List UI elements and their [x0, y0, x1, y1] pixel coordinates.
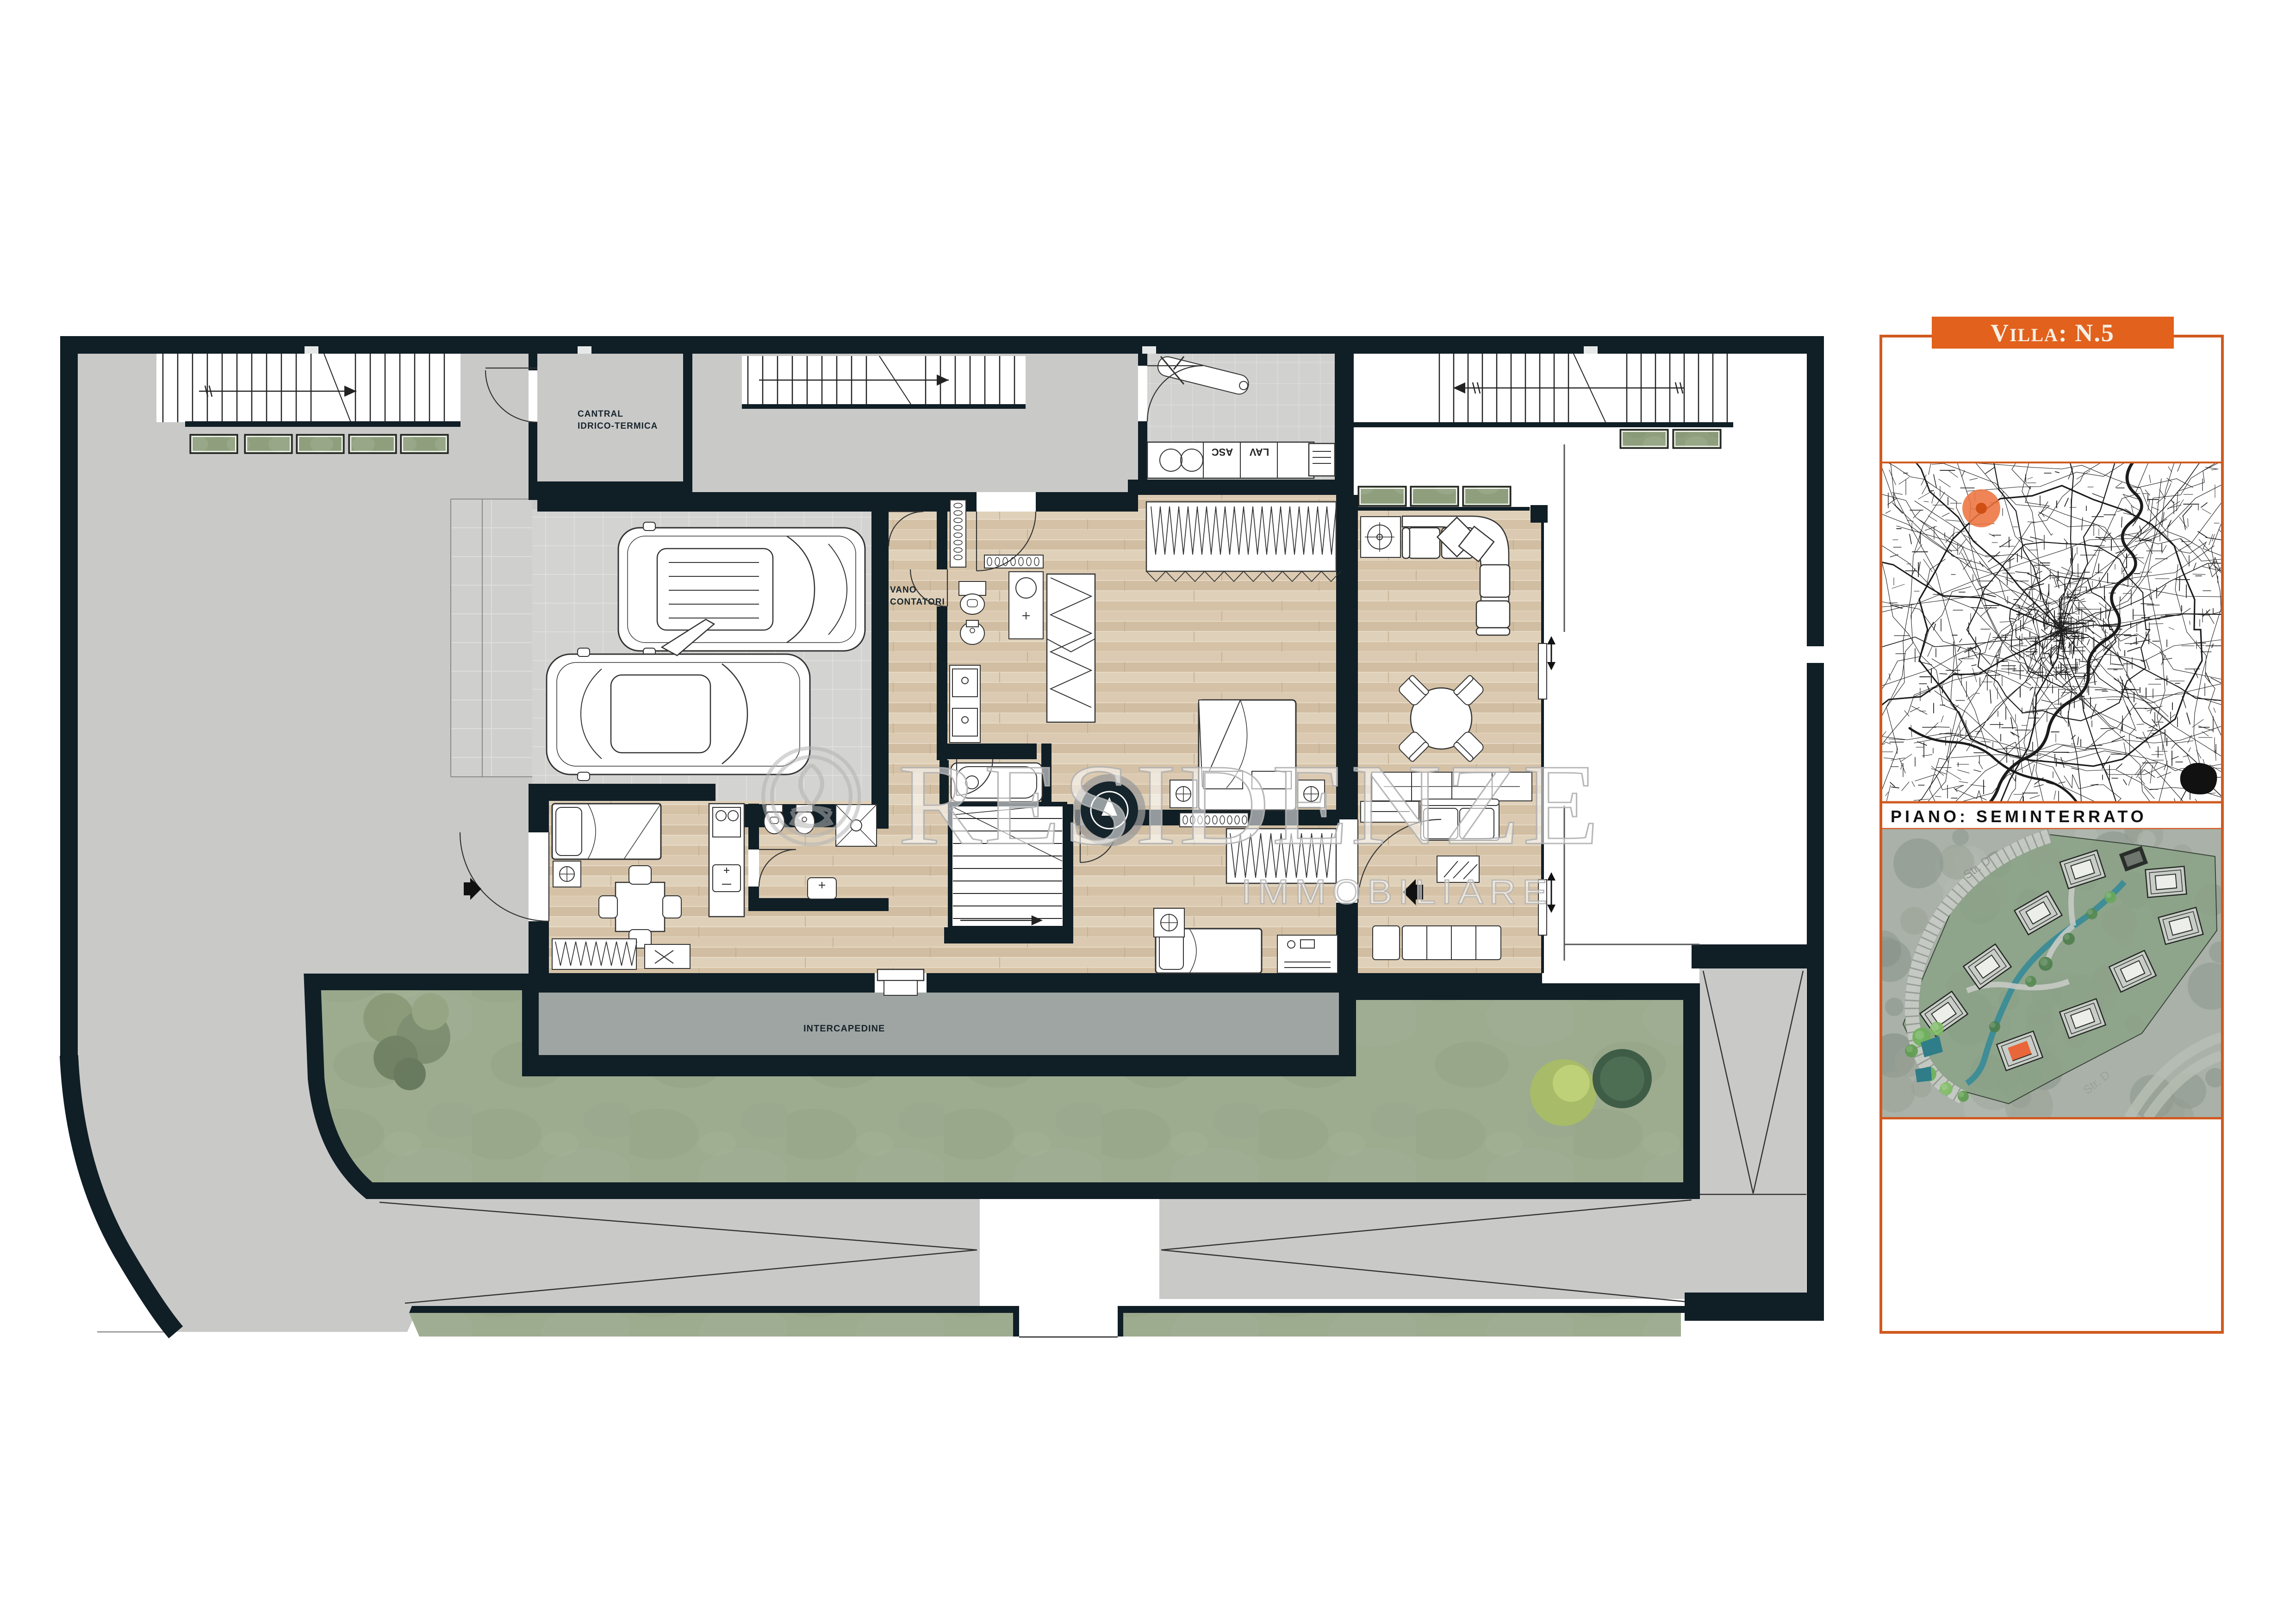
svg-text:ASC: ASC — [1212, 446, 1233, 458]
svg-text:INTERCAPEDINE: INTERCAPEDINE — [803, 1024, 885, 1034]
svg-text:VANO: VANO — [890, 585, 916, 595]
svg-text:LAV: LAV — [1249, 446, 1269, 458]
svg-text:PIANO: SEMINTERRATO: PIANO: SEMINTERRATO — [1891, 807, 2147, 826]
svg-text:RESIDENZE: RESIDENZE — [898, 741, 1601, 869]
svg-text:IDRICO-TERMICA: IDRICO-TERMICA — [578, 421, 658, 431]
svg-text:CONTATORI: CONTATORI — [890, 597, 945, 607]
svg-text:CANTRAL: CANTRAL — [578, 409, 623, 419]
svg-text:IMMOBILIARE: IMMOBILIARE — [1241, 873, 1553, 911]
